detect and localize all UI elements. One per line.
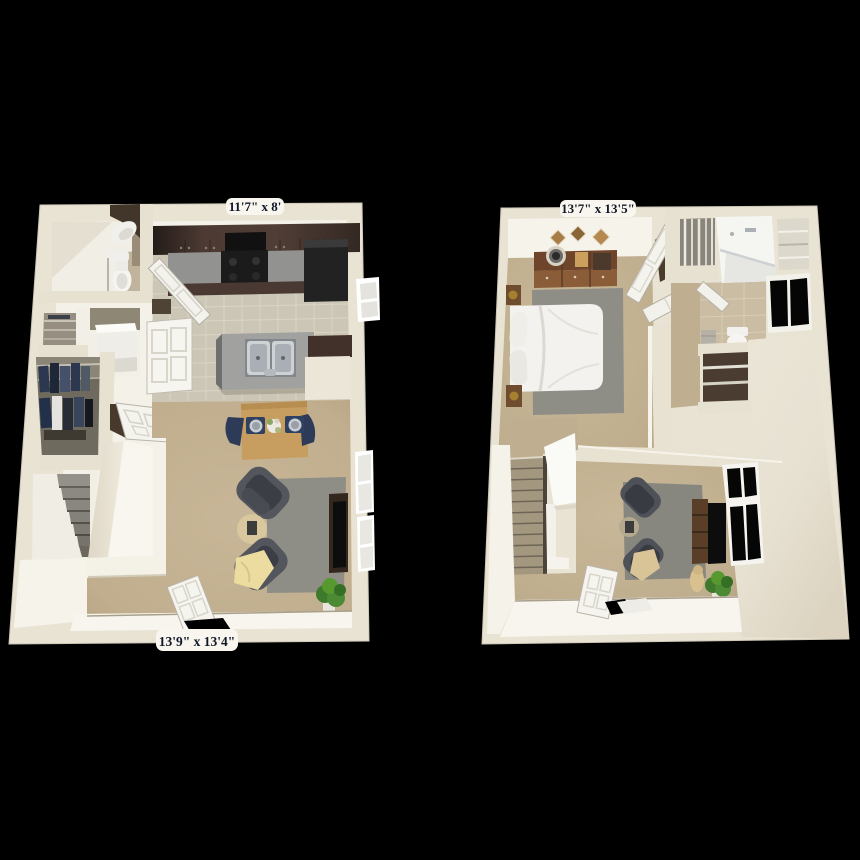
svg-text:13'7" x 13'5": 13'7" x 13'5" bbox=[561, 201, 635, 216]
svg-text:11'7" x 8': 11'7" x 8' bbox=[229, 199, 282, 214]
svg-text:13'9" x 13'4": 13'9" x 13'4" bbox=[159, 634, 236, 649]
